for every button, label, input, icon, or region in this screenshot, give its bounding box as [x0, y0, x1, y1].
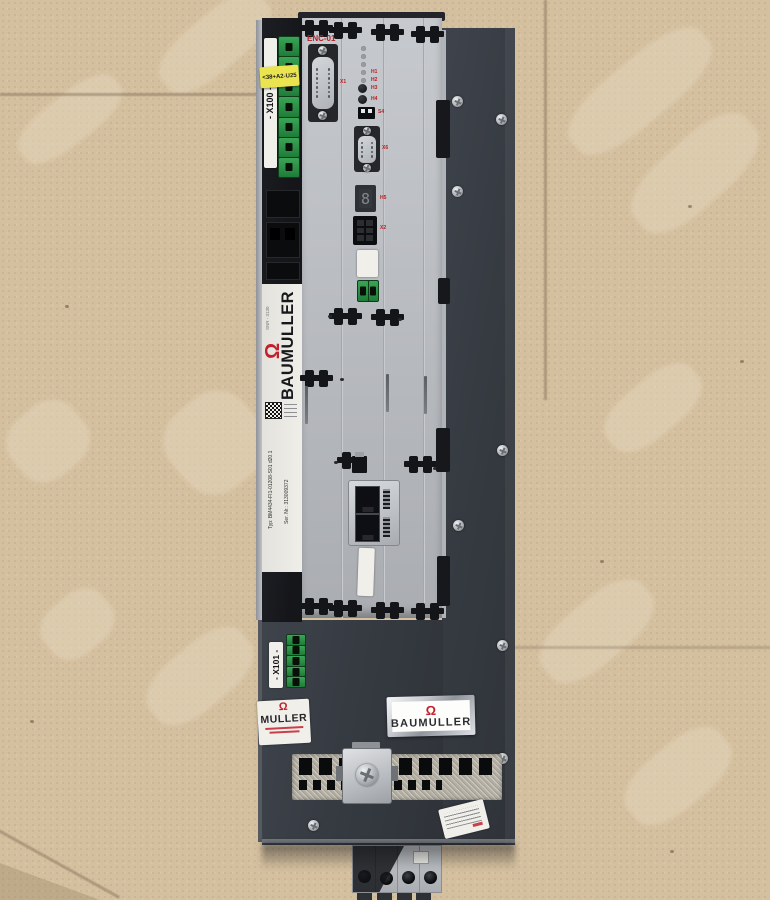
enc-module-label: ENC-01	[307, 34, 335, 43]
db15-shell	[312, 57, 334, 109]
type-text: Typ: BM4434-FI1-01208-S01 d20.1	[266, 428, 277, 552]
latch-tab	[438, 278, 450, 304]
terminal-cell	[279, 37, 299, 56]
retaining-clip	[430, 26, 439, 43]
floor-speck	[600, 560, 604, 563]
panel-screw-dot	[328, 315, 332, 318]
retaining-clip	[376, 602, 385, 619]
chassis-screw	[452, 186, 463, 197]
display-label: H5	[380, 196, 386, 201]
tile-seam	[0, 93, 258, 96]
mini-terminal	[357, 280, 379, 302]
terminal-cell	[279, 138, 299, 157]
brand-label-text: BAUMULLER	[391, 715, 472, 729]
shipping-label-mark	[472, 822, 482, 827]
brand-label-small-text: MULLER	[260, 712, 307, 726]
tile-seam	[544, 0, 547, 400]
floor-speck	[65, 305, 69, 308]
baumuller-logo-icon: Ω	[279, 702, 288, 713]
terminal-cell	[287, 667, 305, 677]
floor-speck	[670, 850, 674, 853]
floor-speck	[688, 205, 692, 208]
screw-terminal	[424, 871, 437, 884]
terminal-foot	[416, 893, 431, 900]
ethernet-label	[357, 548, 375, 597]
db9-shell	[358, 136, 376, 163]
type-value: BM4434-FI1-01208-S01 d20.1	[268, 451, 274, 519]
ethernet-port-bottom	[355, 514, 380, 542]
retaining-clip	[319, 370, 328, 387]
status-led	[361, 54, 366, 59]
connector-screw	[318, 111, 327, 120]
retaining-clip	[416, 26, 425, 43]
status-led	[361, 62, 366, 67]
status-led	[361, 46, 366, 51]
button-label: H4	[371, 97, 377, 102]
led-label: H2	[371, 78, 377, 83]
status-led	[361, 70, 366, 75]
connector-slot	[266, 262, 300, 280]
db9-ref-label: X6	[382, 146, 388, 151]
db15-pins	[312, 57, 334, 109]
db15-connector	[308, 44, 338, 122]
x100-label: - X100 -	[264, 38, 277, 168]
clamp-wing	[391, 766, 398, 781]
terminal-cell	[358, 281, 368, 301]
connector-screw	[363, 164, 371, 172]
latch-tab	[437, 556, 450, 606]
display-digit: 8	[361, 190, 370, 208]
label-fine-line	[269, 730, 299, 733]
vent-slot	[305, 386, 308, 424]
retaining-clip	[416, 603, 425, 620]
button-label: H3	[371, 86, 377, 91]
chassis-screw	[497, 445, 508, 456]
retaining-clip	[348, 308, 357, 325]
type-label: Typ:	[268, 520, 274, 529]
retaining-clip	[409, 456, 418, 473]
retaining-clip	[342, 452, 351, 469]
led-label: H1	[371, 70, 377, 75]
connector-screw	[318, 46, 327, 55]
panel-screw-dot	[398, 318, 402, 321]
terminal-cell	[279, 118, 299, 137]
serial-label: Ser. Nr.:	[284, 506, 290, 524]
tile-seam	[515, 646, 770, 649]
service-connector-tab	[355, 452, 364, 457]
retaining-clip	[334, 308, 343, 325]
ethernet-pin-strip	[383, 489, 390, 509]
panel-seam	[423, 18, 425, 618]
db9-pins	[358, 136, 376, 163]
db9-connector	[354, 126, 380, 172]
terminal-mini-label	[413, 851, 429, 864]
cable-clamp-plate	[342, 748, 392, 804]
brand-label-small: Ω MULLER	[257, 699, 311, 746]
chassis-screw	[452, 96, 463, 107]
terminal-cell	[279, 97, 299, 116]
terminal-cell	[287, 646, 305, 656]
dip-switch	[358, 107, 375, 119]
clamp-screw	[356, 764, 378, 786]
retaining-clip	[348, 600, 357, 617]
terminal-cell	[287, 677, 305, 687]
terminal-foot	[357, 893, 372, 900]
terminal-cell	[279, 158, 299, 177]
power-module-front-bottom	[262, 572, 302, 622]
dip-lever	[368, 109, 372, 113]
brand-label-metallic: Ω BAUMULLER	[386, 695, 475, 737]
brand-vertical-text: BAUMULLER	[276, 288, 300, 404]
serial-value: 313009372	[284, 480, 290, 505]
retaining-clip	[348, 22, 357, 39]
chassis-screw	[308, 820, 319, 831]
floor-speck	[740, 360, 744, 363]
ethernet-port-top	[355, 486, 380, 514]
io-connector-label: X2	[380, 226, 386, 231]
nameplate-fine-print	[284, 402, 297, 417]
terminal-cell	[287, 656, 305, 666]
chassis-bottom-edge	[262, 839, 515, 843]
db15-ref-label: X1	[340, 80, 346, 85]
mini-label	[357, 250, 378, 277]
retaining-clip	[390, 602, 399, 619]
retaining-clip	[305, 598, 314, 615]
ethernet-pin-strip	[383, 517, 390, 537]
chassis-screw	[453, 520, 464, 531]
retaining-clip	[305, 370, 314, 387]
connector-screw	[363, 127, 371, 135]
chassis-screw	[497, 640, 508, 651]
retaining-clip	[376, 24, 385, 41]
retaining-clip	[390, 24, 399, 41]
floor-speck	[30, 720, 34, 723]
display-window: 8	[359, 189, 372, 208]
yellow-id-sticker: <38+A2-U25	[259, 65, 299, 89]
datamatrix-code	[265, 402, 282, 419]
service-connector	[352, 456, 367, 473]
terminal-foot	[397, 893, 412, 900]
connector-pin-hole	[270, 228, 280, 240]
reset-button	[358, 84, 367, 93]
retaining-clip	[319, 598, 328, 615]
retaining-clip	[423, 456, 432, 473]
connector-pin-hole	[285, 228, 295, 240]
status-led	[361, 78, 366, 83]
reset-button	[358, 95, 367, 104]
x100-terminal-block	[278, 36, 300, 178]
dip-lever	[361, 109, 365, 113]
connector-slot	[266, 190, 300, 218]
io-connector	[353, 216, 377, 245]
retaining-clip	[376, 309, 385, 326]
latch-tab	[436, 428, 450, 472]
power-terminal-block	[352, 845, 442, 893]
screw-terminal	[402, 871, 415, 884]
seven-segment-display: 8	[355, 185, 376, 212]
vent-holes-row-small	[394, 780, 442, 790]
brand-label-inner: Ω BAUMULLER	[392, 700, 471, 732]
terminal-cell	[369, 281, 379, 301]
baumuller-logo-icon: Ω	[425, 703, 436, 716]
retaining-clip	[334, 600, 343, 617]
dip-label: S4	[378, 110, 384, 115]
serial-text: Ser. Nr.: 313009372	[282, 452, 293, 552]
panel-screw-dot	[334, 461, 338, 464]
x101-terminal-block	[286, 634, 306, 688]
latch-tab	[436, 100, 450, 158]
chassis-screw	[496, 114, 507, 125]
vent-slot	[386, 374, 389, 412]
terminal-cell	[287, 635, 305, 645]
terminal-foot	[377, 893, 392, 900]
clamp-wing	[336, 766, 343, 781]
x101-label: - X101 -	[269, 642, 283, 688]
vent-slot	[424, 376, 427, 414]
chassis-edge-highlight	[505, 28, 515, 845]
panel-screw-dot	[340, 378, 344, 381]
